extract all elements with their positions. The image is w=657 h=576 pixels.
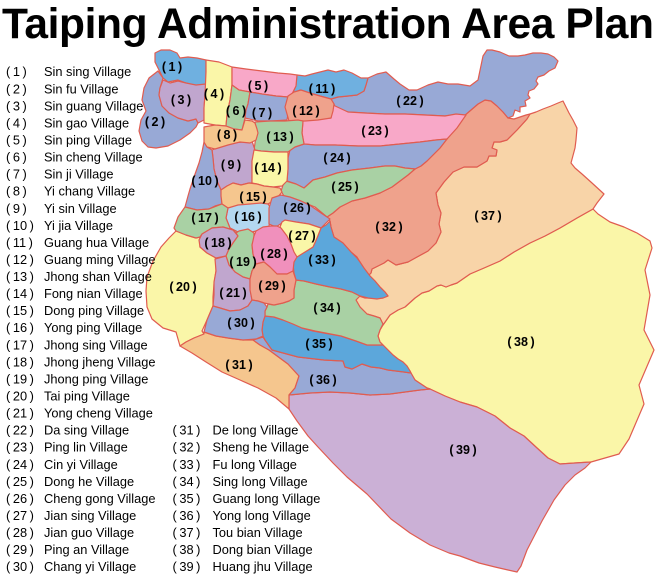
svg-text:( 2 ): ( 2 ) (145, 115, 165, 129)
svg-text:Jhong sing Village: Jhong sing Village (44, 337, 148, 352)
svg-text:( 13 ): ( 13 ) (266, 130, 293, 144)
svg-text:Ping lin Village: Ping lin Village (44, 440, 128, 455)
svg-text:( 18 ): ( 18 ) (6, 354, 34, 369)
svg-text:( 17 ): ( 17 ) (191, 211, 218, 225)
svg-text:( 19 ): ( 19 ) (6, 372, 34, 387)
svg-text:Jhong shan Village: Jhong shan Village (44, 269, 152, 284)
svg-text:( 36 ): ( 36 ) (173, 508, 201, 523)
svg-text:Sin gao Village: Sin gao Village (44, 115, 129, 130)
svg-text:Sin fu Village: Sin fu Village (44, 81, 118, 96)
svg-text:( 9 ): ( 9 ) (221, 158, 241, 172)
svg-text:( 3 ): ( 3 ) (171, 93, 191, 107)
svg-text:( 27 ): ( 27 ) (6, 508, 34, 523)
svg-text:Jhong ping Village: Jhong ping Village (44, 372, 148, 387)
svg-text:( 12 ): ( 12 ) (292, 104, 319, 118)
svg-text:( 29 ): ( 29 ) (258, 279, 285, 293)
svg-text:Da sing Village: Da sing Village (44, 423, 129, 438)
svg-text:( 25 ): ( 25 ) (6, 474, 34, 489)
svg-text:Yong cheng Village: Yong cheng Village (44, 406, 153, 421)
svg-text:( 8 ): ( 8 ) (217, 128, 237, 142)
svg-text:( 16 ): ( 16 ) (6, 320, 34, 335)
svg-text:Yong long Village: Yong long Village (213, 508, 311, 523)
svg-text:( 38 ): ( 38 ) (173, 542, 201, 557)
svg-text:( 29 ): ( 29 ) (6, 542, 34, 557)
svg-text:Yi jia Village: Yi jia Village (44, 218, 113, 233)
svg-text:( 32 ): ( 32 ) (173, 440, 201, 455)
svg-text:Guang ming Village: Guang ming Village (44, 252, 155, 267)
svg-text:Fu long Village: Fu long Village (213, 457, 297, 472)
svg-text:Dong bian Village: Dong bian Village (213, 542, 313, 557)
svg-text:( 17 ): ( 17 ) (6, 337, 34, 352)
svg-text:( 5 ): ( 5 ) (248, 79, 268, 93)
svg-text:De long Village: De long Village (213, 423, 299, 438)
svg-text:( 23 ): ( 23 ) (6, 440, 34, 455)
svg-text:Jian guo Village: Jian guo Village (44, 525, 134, 540)
svg-text:( 6 ): ( 6 ) (226, 104, 246, 118)
svg-text:( 24 ): ( 24 ) (323, 151, 350, 165)
svg-text:( 21 ): ( 21 ) (219, 286, 246, 300)
svg-text:Sing long Village: Sing long Village (213, 474, 308, 489)
svg-text:( 30 ): ( 30 ) (6, 559, 34, 574)
svg-text:( 1 ): ( 1 ) (162, 60, 182, 74)
svg-text:( 5 ): ( 5 ) (6, 133, 27, 148)
svg-text:Sin ji Village: Sin ji Village (44, 167, 113, 182)
svg-text:( 20 ): ( 20 ) (6, 389, 34, 404)
svg-text:( 4 ): ( 4 ) (6, 115, 27, 130)
svg-text:( 4 ): ( 4 ) (204, 87, 224, 101)
svg-text:( 33 ): ( 33 ) (173, 457, 201, 472)
svg-text:( 14 ): ( 14 ) (6, 286, 34, 301)
svg-text:( 6 ): ( 6 ) (6, 150, 27, 165)
svg-text:Yi chang Village: Yi chang Village (44, 184, 135, 199)
svg-text:( 2 ): ( 2 ) (6, 81, 27, 96)
svg-text:( 10 ): ( 10 ) (191, 174, 218, 188)
svg-text:Yong ping Village: Yong ping Village (44, 320, 142, 335)
svg-text:( 28 ): ( 28 ) (6, 525, 34, 540)
svg-text:( 25 ): ( 25 ) (331, 180, 358, 194)
svg-text:( 36 ): ( 36 ) (309, 373, 336, 387)
svg-text:( 11 ): ( 11 ) (309, 82, 336, 96)
svg-text:Sin ping Village: Sin ping Village (44, 133, 132, 148)
svg-text:( 37 ): ( 37 ) (474, 209, 501, 223)
svg-text:( 20 ): ( 20 ) (169, 280, 196, 294)
svg-text:( 9 ): ( 9 ) (6, 201, 27, 216)
svg-text:Sin sing Village: Sin sing Village (44, 64, 131, 79)
svg-text:Chang yi Village: Chang yi Village (44, 559, 136, 574)
svg-text:Cin yi Village: Cin yi Village (44, 457, 118, 472)
svg-text:Sin cheng Village: Sin cheng Village (44, 150, 143, 165)
svg-text:Tou bian Village: Tou bian Village (213, 525, 303, 540)
svg-text:Guang long Village: Guang long Village (213, 491, 321, 506)
svg-text:( 39 ): ( 39 ) (173, 559, 201, 574)
svg-text:( 22 ): ( 22 ) (396, 94, 423, 108)
svg-text:( 27 ): ( 27 ) (288, 229, 315, 243)
svg-text:( 24 ): ( 24 ) (6, 457, 34, 472)
svg-text:Jian sing Village: Jian sing Village (44, 508, 136, 523)
svg-text:( 26 ): ( 26 ) (6, 491, 34, 506)
svg-text:( 11 ): ( 11 ) (6, 235, 33, 250)
svg-text:Dong he Village: Dong he Village (44, 474, 134, 489)
svg-text:( 30 ): ( 30 ) (227, 316, 254, 330)
svg-text:( 13 ): ( 13 ) (6, 269, 34, 284)
svg-text:Ping an Village: Ping an Village (44, 542, 129, 557)
svg-text:( 32 ): ( 32 ) (375, 220, 402, 234)
svg-text:( 15 ): ( 15 ) (239, 190, 266, 204)
svg-text:( 31 ): ( 31 ) (173, 423, 201, 438)
svg-text:( 12 ): ( 12 ) (6, 252, 34, 267)
svg-text:( 31 ): ( 31 ) (225, 358, 252, 372)
svg-text:Fong nian Village: Fong nian Village (44, 286, 143, 301)
svg-text:( 39 ): ( 39 ) (449, 443, 476, 457)
svg-text:( 22 ): ( 22 ) (6, 423, 34, 438)
svg-text:( 7 ): ( 7 ) (6, 167, 27, 182)
svg-text:( 3 ): ( 3 ) (6, 98, 27, 113)
svg-text:( 23 ): ( 23 ) (361, 124, 388, 138)
svg-text:( 14 ): ( 14 ) (254, 161, 281, 175)
svg-text:Dong ping Village: Dong ping Village (44, 303, 144, 318)
svg-text:( 15 ): ( 15 ) (6, 303, 34, 318)
svg-text:( 8 ): ( 8 ) (6, 184, 27, 199)
svg-text:( 7 ): ( 7 ) (252, 106, 272, 120)
svg-text:( 26 ): ( 26 ) (283, 201, 310, 215)
svg-text:Cheng gong Village: Cheng gong Village (44, 491, 155, 506)
svg-text:( 37 ): ( 37 ) (173, 525, 201, 540)
svg-text:( 34 ): ( 34 ) (173, 474, 201, 489)
svg-text:( 34 ): ( 34 ) (313, 301, 340, 315)
svg-text:( 18 ): ( 18 ) (204, 236, 231, 250)
svg-text:( 16 ): ( 16 ) (234, 210, 261, 224)
svg-text:Tai ping Village: Tai ping Village (44, 389, 130, 404)
svg-text:( 1 ): ( 1 ) (6, 64, 27, 79)
svg-text:Huang jhu Village: Huang jhu Village (213, 559, 313, 574)
svg-text:( 21 ): ( 21 ) (6, 406, 34, 421)
svg-text:Sin guang Village: Sin guang Village (44, 98, 143, 113)
svg-text:( 35 ): ( 35 ) (305, 337, 332, 351)
svg-text:( 19 ): ( 19 ) (229, 255, 256, 269)
svg-text:( 28 ): ( 28 ) (260, 247, 287, 261)
svg-text:Guang hua Village: Guang hua Village (44, 235, 149, 250)
svg-text:Jhong jheng Village: Jhong jheng Village (44, 354, 155, 369)
svg-text:Yi sin Village: Yi sin Village (44, 201, 117, 216)
svg-text:( 10 ): ( 10 ) (6, 218, 34, 233)
svg-text:( 33 ): ( 33 ) (308, 253, 335, 267)
svg-text:( 35 ): ( 35 ) (173, 491, 201, 506)
svg-text:Sheng he Village: Sheng he Village (213, 440, 310, 455)
svg-text:( 38 ): ( 38 ) (507, 335, 534, 349)
